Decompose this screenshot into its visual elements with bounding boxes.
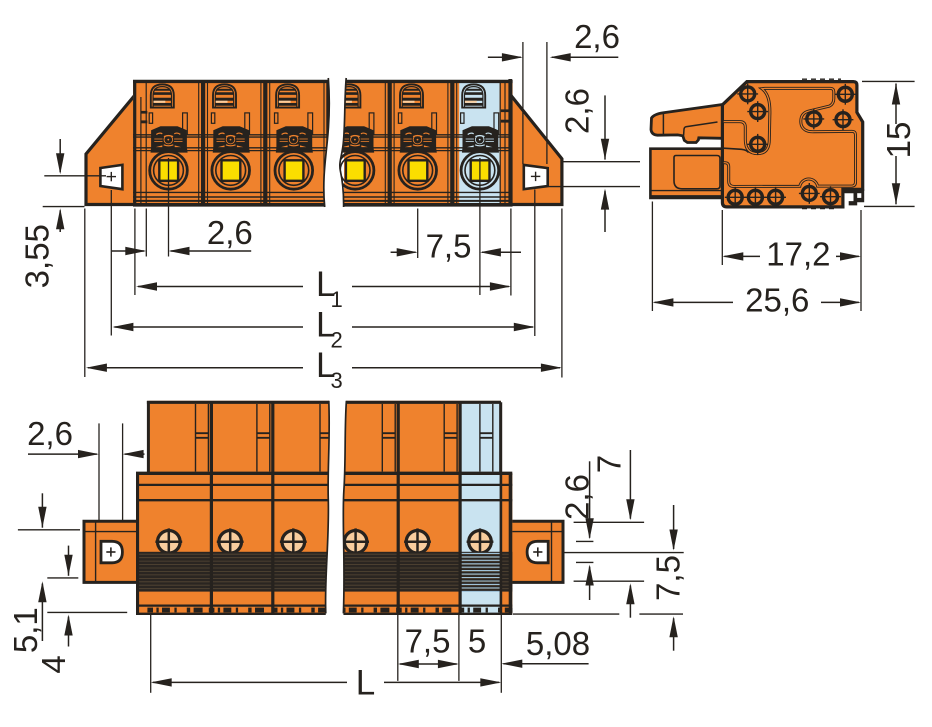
svg-text:4: 4 (35, 655, 72, 673)
svg-text:2,6: 2,6 (559, 474, 596, 520)
svg-text:7,5: 7,5 (650, 555, 687, 601)
svg-text:2,6: 2,6 (559, 88, 596, 134)
svg-text:25,6: 25,6 (745, 282, 809, 319)
svg-text:17,2: 17,2 (766, 236, 830, 273)
svg-text:7,5: 7,5 (405, 623, 451, 660)
svg-text:5,1: 5,1 (7, 607, 44, 653)
svg-text:3: 3 (331, 368, 343, 393)
svg-text:5: 5 (468, 623, 486, 660)
svg-text:3,55: 3,55 (19, 224, 56, 288)
svg-text:7: 7 (591, 455, 628, 473)
svg-text:7,5: 7,5 (426, 228, 472, 265)
svg-text:2,6: 2,6 (207, 214, 253, 251)
svg-text:L: L (356, 664, 375, 703)
svg-text:2,6: 2,6 (574, 18, 620, 55)
svg-text:15: 15 (880, 122, 917, 159)
svg-text:2,6: 2,6 (27, 415, 73, 452)
svg-text:5,08: 5,08 (526, 625, 590, 662)
